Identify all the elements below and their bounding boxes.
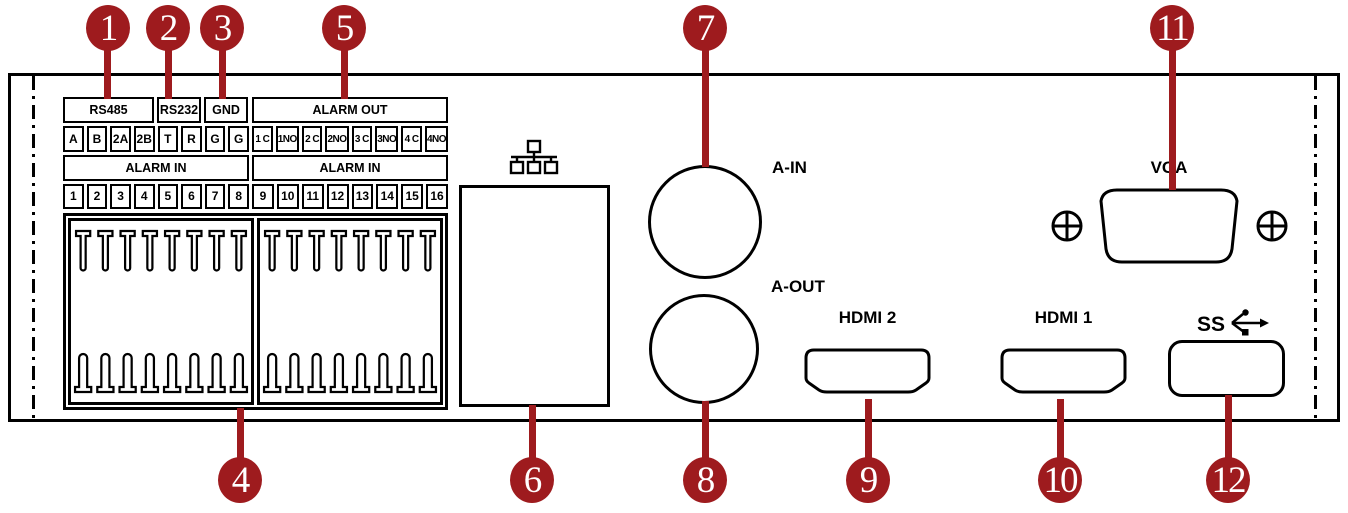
hdmi1-port	[999, 348, 1128, 402]
callout-stem-2	[165, 48, 172, 99]
terminal-cell: 11	[302, 184, 324, 210]
callout-10: 10	[1038, 457, 1082, 503]
usb-superspeed-icon: SS	[1196, 306, 1270, 340]
ethernet-port	[459, 185, 610, 407]
rear-panel-diagram: RS485 RS232 GND A B 2A 2B T R G G ALARM …	[0, 0, 1348, 513]
terminal-cell: G	[228, 126, 249, 152]
terminal-cell: 3 C	[352, 126, 373, 152]
alarm-in-right-block: ALARM IN 9 10 11 12 13 14 15 16	[252, 155, 448, 209]
callout-stem-9	[865, 399, 872, 459]
terminal-cell: 4	[134, 184, 155, 210]
terminal-cell: 5	[158, 184, 179, 210]
terminal-cell: R	[181, 126, 202, 152]
rs485-header: RS485	[63, 97, 154, 123]
clamp-slots-icon	[71, 221, 251, 402]
callout-stem-10	[1057, 399, 1064, 459]
panel-right-dashdot-line	[1314, 76, 1317, 419]
spring-clamp-terminal-block	[63, 213, 448, 410]
callout-2: 2	[146, 5, 190, 51]
alarm-out-header: ALARM OUT	[252, 97, 448, 123]
terminal-cell: 16	[426, 184, 448, 210]
terminal-cell: B	[87, 126, 108, 152]
callout-3: 3	[200, 5, 244, 51]
hdmi2-port	[803, 348, 932, 402]
terminal-cell: T	[158, 126, 179, 152]
terminal-cell: 10	[277, 184, 299, 210]
callout-stem-3	[219, 48, 226, 99]
terminal-cell: 3	[110, 184, 131, 210]
rs232-header: RS232	[157, 97, 201, 123]
callout-stem-5	[341, 48, 348, 99]
vga-screw-left-icon	[1050, 209, 1084, 243]
terminal-cell: 14	[376, 184, 398, 210]
callout-8: 8	[683, 457, 727, 503]
clamp-box-left	[68, 218, 254, 405]
callout-stem-1	[104, 48, 111, 99]
terminal-cell: 4NO	[425, 126, 448, 152]
terminal-cell: 7	[205, 184, 226, 210]
callout-stem-8	[702, 401, 709, 459]
callout-11: 11	[1150, 5, 1194, 51]
audio-in-jack	[648, 165, 762, 279]
terminal-cell: 2A	[110, 126, 131, 152]
terminal-cell: A	[63, 126, 84, 152]
callout-stem-12	[1225, 395, 1232, 459]
terminal-cell: G	[205, 126, 226, 152]
terminal-cell: 6	[181, 184, 202, 210]
usb-port	[1168, 340, 1285, 397]
terminal-cell: 1	[63, 184, 84, 210]
callout-7: 7	[683, 5, 727, 51]
audio-out-label: A-OUT	[771, 277, 825, 297]
terminal-cell: 2NO	[325, 126, 348, 152]
callout-6: 6	[510, 457, 554, 503]
callout-stem-4	[237, 408, 244, 459]
alarm-out-block: ALARM OUT 1 C 1NO 2 C 2NO 3 C 3NO 4 C 4N…	[252, 97, 448, 152]
rs485-rs232-gnd-block: RS485 RS232 GND A B 2A 2B T R G G	[63, 97, 249, 152]
clamp-slots-icon	[260, 221, 440, 402]
callout-stem-11	[1169, 48, 1176, 190]
alarm-in-header: ALARM IN	[252, 155, 448, 181]
terminal-cell: 2B	[134, 126, 155, 152]
usb-ss-label: SS	[1197, 313, 1225, 336]
terminal-cell: 9	[252, 184, 274, 210]
audio-out-jack	[649, 294, 759, 404]
vga-port	[1095, 186, 1243, 266]
terminal-cell: 12	[327, 184, 349, 210]
callout-4: 4	[218, 457, 262, 503]
callout-stem-6	[529, 405, 536, 459]
callout-12: 12	[1206, 457, 1250, 503]
terminal-cell: 2	[87, 184, 108, 210]
panel-left-dashdot-line	[32, 76, 35, 419]
terminal-cell: 8	[228, 184, 249, 210]
callout-1: 1	[86, 5, 130, 51]
terminal-cell: 3NO	[375, 126, 398, 152]
terminal-cell: 1NO	[276, 126, 299, 152]
terminal-cell: 1 C	[252, 126, 273, 152]
audio-in-label: A-IN	[772, 158, 807, 178]
alarm-in-left-block: ALARM IN 1 2 3 4 5 6 7 8	[63, 155, 249, 209]
gnd-header: GND	[204, 97, 248, 123]
callout-stem-7	[702, 48, 709, 167]
terminal-cell: 15	[401, 184, 423, 210]
terminal-cell: 2 C	[302, 126, 323, 152]
callout-5: 5	[322, 5, 366, 51]
hdmi1-label: HDMI 1	[999, 308, 1128, 328]
ethernet-icon	[504, 139, 564, 179]
alarm-in-header: ALARM IN	[63, 155, 249, 181]
vga-screw-right-icon	[1255, 209, 1289, 243]
terminal-cell: 4 C	[401, 126, 422, 152]
clamp-box-right	[257, 218, 443, 405]
terminal-cell: 13	[352, 184, 374, 210]
hdmi2-label: HDMI 2	[803, 308, 932, 328]
callout-9: 9	[846, 457, 890, 503]
